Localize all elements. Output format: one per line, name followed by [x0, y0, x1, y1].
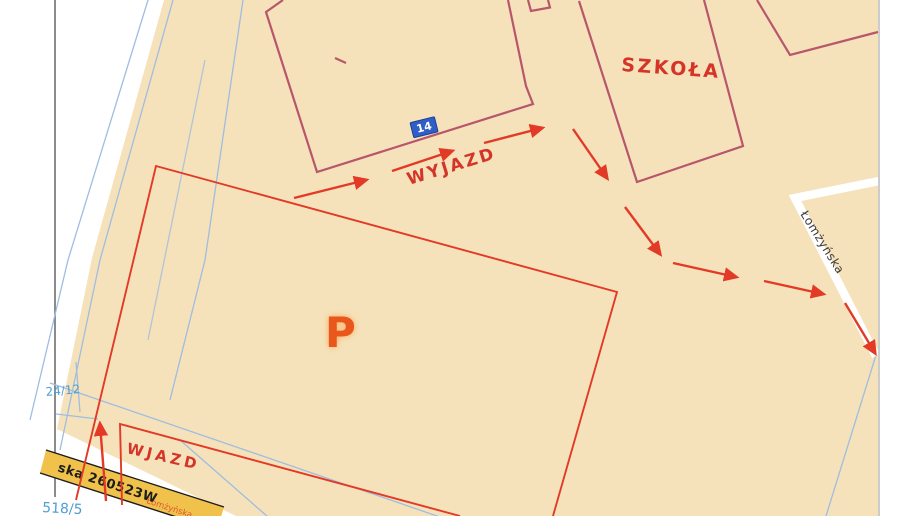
parcel-label-lower: 518/5	[42, 500, 83, 516]
parking-symbol: P	[325, 308, 356, 357]
paper-region	[57, 0, 878, 516]
map-canvas: ska 260523W Łomżyńska SZKOŁA WYJAZD WJAZ…	[0, 0, 920, 516]
scanned-site-map: ska 260523W Łomżyńska SZKOŁA WYJAZD WJAZ…	[0, 0, 920, 516]
right-margin	[879, 0, 920, 516]
